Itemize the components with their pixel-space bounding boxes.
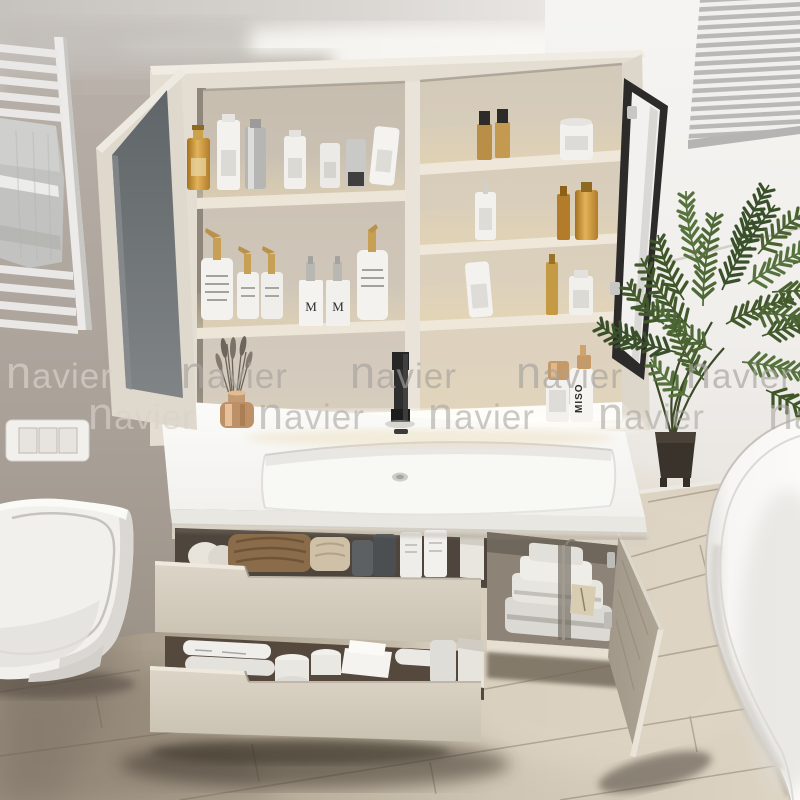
svg-text:M: M <box>305 299 317 314</box>
svg-text:M: M <box>332 299 344 314</box>
